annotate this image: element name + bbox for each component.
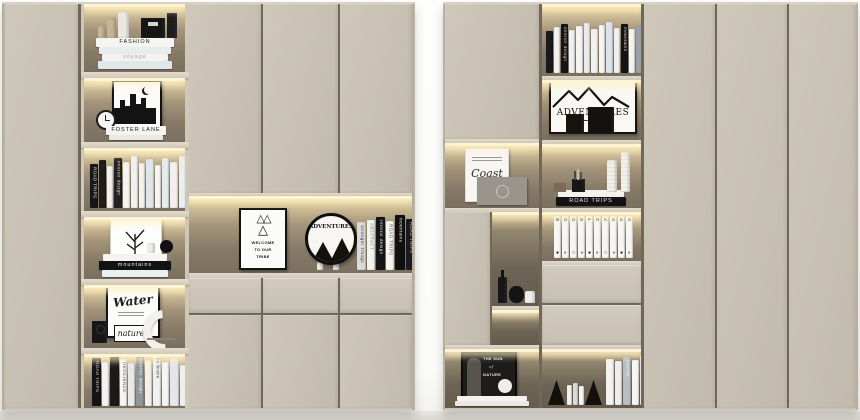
triangle-bookend <box>548 380 565 405</box>
poster-line3: NATURE <box>483 372 501 377</box>
speaker-cone <box>96 325 105 334</box>
door-panel-narrow <box>445 212 490 345</box>
book-spine <box>629 29 635 73</box>
empty-niche <box>492 310 539 345</box>
decor-box <box>141 18 165 38</box>
drawer-front <box>263 278 338 313</box>
adventures-round-sign: ADVENTURES <box>305 213 357 265</box>
stacked-book: ROAD TRIPS <box>556 197 626 206</box>
book-spine <box>579 386 584 405</box>
book-spine-text: E <box>620 218 623 223</box>
book-spine: P● <box>586 216 593 258</box>
book-spine-text: P <box>588 218 591 223</box>
bottle <box>498 277 507 303</box>
book-spine-text: O <box>564 218 568 223</box>
decor-box <box>588 107 614 134</box>
tribe-line1: WELCOME <box>241 240 285 245</box>
book-stack-foster-lane: FOSTER LANE <box>106 126 166 140</box>
book-spine <box>162 158 169 208</box>
stacked-book: FOSTER LANE <box>106 126 166 135</box>
book-spine <box>614 28 620 73</box>
wood-box <box>554 183 566 192</box>
book-spine: ABSTRACT <box>367 220 375 270</box>
moon-phases-niche: M●O◐O○N◑P●H◐A○S◑E●S◐ <box>542 212 641 261</box>
door-panel <box>644 4 715 408</box>
book-spine <box>128 363 135 406</box>
book-spine <box>615 361 622 405</box>
mountain-graphic <box>312 242 334 262</box>
book-spine-text: A <box>604 218 608 223</box>
art-caption-lines <box>118 312 144 317</box>
books-row: Stranger ThingsABSTRACTInterior designRO… <box>357 215 412 270</box>
moon-phase-icon: ○ <box>604 251 607 256</box>
book-spine-text: Stranger Things <box>359 225 364 263</box>
book-spine: O◐ <box>562 216 569 258</box>
book-spine <box>131 156 138 208</box>
drawer-front <box>542 265 641 303</box>
book-spine <box>110 354 119 406</box>
book-spine-text: interior design <box>116 161 121 195</box>
book-spine: A○ <box>602 216 609 258</box>
round-vase <box>509 286 524 303</box>
ring-logo <box>496 185 509 198</box>
book-spine-text: N <box>580 218 584 223</box>
book-spine <box>640 355 641 405</box>
book-spine <box>606 359 614 405</box>
book-stack-mountains: mountains <box>98 254 172 277</box>
moon-phase-icon: ● <box>588 251 591 256</box>
book-spine <box>99 160 106 208</box>
side-trim <box>412 2 415 410</box>
candle <box>147 243 155 253</box>
stacked-book <box>103 254 167 261</box>
mountain-graphic <box>330 238 354 262</box>
tribe-line3: TRIBE <box>241 254 285 259</box>
magazine-niche: Coast <box>445 143 539 208</box>
book-spine <box>155 165 161 208</box>
moon-phase-icon: ● <box>556 251 559 256</box>
stacked-book: voyage <box>102 54 168 61</box>
book-spine: S◐ <box>626 216 633 258</box>
book-spine <box>180 365 185 406</box>
stacked-book-title: voyage <box>102 54 168 61</box>
small-books <box>567 383 584 405</box>
horn-sculpture <box>143 304 179 340</box>
sculpture-base <box>147 338 175 340</box>
figure-silhouette <box>467 358 481 396</box>
book-spine <box>107 166 113 208</box>
book-spine <box>162 362 169 406</box>
book-spine: ROAD TRIPS <box>406 219 412 270</box>
book-spine: N◑ <box>578 216 585 258</box>
shelf-niche-fashion: FASHIONvoyage <box>84 4 185 72</box>
decor-box <box>167 13 177 38</box>
vase <box>107 18 116 38</box>
book-spine: Interior design <box>376 217 385 270</box>
shelf-niche-books: ROAD TRIPSinterior design <box>84 148 185 211</box>
book-spine-text: S <box>628 218 631 223</box>
door-panel <box>445 4 539 139</box>
book-spine-text: H <box>596 218 600 223</box>
book-spine: be brave <box>153 355 161 406</box>
book-spine <box>591 29 598 73</box>
book-spine-text: interior <box>625 360 630 377</box>
book-spine: interior design <box>136 356 144 406</box>
books-row: interior <box>606 355 641 405</box>
door-panel <box>5 4 78 408</box>
books-row: ROAD TRIPSinterior design <box>90 156 185 208</box>
magazine-text-lines <box>472 157 502 163</box>
book-spine <box>123 162 130 208</box>
book-spine-text: interior design <box>138 359 143 393</box>
white-jar <box>525 291 535 303</box>
decor-box <box>566 114 584 134</box>
pencil <box>574 171 576 180</box>
book-spine <box>170 358 179 406</box>
spiral-vase <box>607 160 617 192</box>
book-spine <box>569 30 575 73</box>
vase <box>98 26 105 38</box>
poster-line2: of <box>489 364 494 369</box>
side-trim <box>856 2 858 410</box>
stacked-book <box>109 135 163 140</box>
book-spine <box>145 360 152 406</box>
book-stack: ROAD TRIPS <box>555 190 627 206</box>
clock-hand <box>105 120 110 121</box>
sphere-vase <box>160 240 173 253</box>
stacked-book-title: ROAD TRIPS <box>556 197 626 206</box>
moon-phase-icon: ◑ <box>580 251 583 256</box>
wardrobe-room-render: FASHIONvoyage FOSTER LANE <box>0 0 860 420</box>
book-spine: ROAD TRIPS <box>92 358 101 406</box>
skyline-artwork <box>112 80 162 130</box>
black-poster: THE SUN of NATURE <box>461 349 517 398</box>
stacked-book <box>455 401 529 406</box>
stacked-book <box>99 47 171 54</box>
book-spine-text: Interior design <box>378 220 383 255</box>
book-spine: O○ <box>570 216 577 258</box>
skyline-graphic <box>114 82 156 124</box>
triangle-bookend <box>585 380 602 405</box>
book-spine <box>179 156 185 208</box>
door-panel <box>189 4 261 193</box>
round-sign-text: ADVENTURES <box>308 224 354 230</box>
display-niche: △△ △ WELCOME TO OUR TRIBE ADVENTURES Str… <box>189 196 412 273</box>
book-spine-text: S <box>612 218 615 223</box>
moon-phase-icon: ○ <box>572 251 575 256</box>
stacked-book <box>98 61 172 69</box>
book-spine-text: be brave <box>155 358 160 379</box>
pencil-cup <box>572 179 585 192</box>
drawer-front <box>189 278 261 313</box>
book-spine <box>146 159 154 208</box>
moon-phase-icon: ◐ <box>628 251 631 256</box>
book-spine: M● <box>554 216 561 258</box>
stacked-book-title: mountains <box>99 261 171 270</box>
door-panel <box>340 4 412 193</box>
book-spine <box>584 23 590 73</box>
door-panel <box>789 4 856 408</box>
wardrobe-unit-left: FASHIONvoyage FOSTER LANE <box>2 2 415 410</box>
stacked-book-title: FASHION <box>96 38 174 47</box>
moon-phase-icon: ● <box>620 251 623 256</box>
shelf-niche-skyline: FOSTER LANE <box>84 78 185 142</box>
moon-phase-icon: ◑ <box>612 251 615 256</box>
bookends-niche: interior <box>542 349 641 408</box>
book-spine: Stranger Things <box>357 222 366 270</box>
book-spine <box>599 25 605 73</box>
book-spine-text: interior design <box>562 27 567 61</box>
tribe-glyph2: △ <box>241 222 285 238</box>
book-spine: interior <box>623 357 631 405</box>
box-label <box>148 22 158 26</box>
book-spine-text: mountains <box>398 218 403 242</box>
book-stack-fashion: FASHIONvoyage <box>96 38 174 69</box>
book-spine: RESILIENCE <box>120 359 127 406</box>
book-spine <box>636 26 641 73</box>
spiral-vase <box>621 152 630 192</box>
book-spine-text: ROAD TRIPS <box>94 361 99 392</box>
tribe-line2: TO OUR <box>241 247 285 252</box>
book-spine <box>139 163 145 208</box>
stacked-book-title: FOSTER LANE <box>106 126 166 135</box>
book-spine-text: ABSTRACT <box>369 223 374 250</box>
book-spine-text: M <box>555 218 559 223</box>
book-spine-text: ROAD TRIPS <box>92 167 97 198</box>
book-spine-text: O <box>572 218 576 223</box>
book-spine: E● <box>618 216 625 258</box>
round-badge <box>498 379 512 393</box>
pencil <box>580 172 582 180</box>
door-panel <box>717 4 787 408</box>
book-spine <box>554 27 560 73</box>
shelf-niche-water: Water nature <box>84 285 185 348</box>
bottle-niche <box>492 212 539 306</box>
book-spine <box>546 31 553 73</box>
floor <box>0 411 860 420</box>
book-spine <box>606 22 613 73</box>
shelf-niche-books-bottom: ROAD TRIPSRESILIENCEinterior designbe br… <box>84 354 185 408</box>
door-panel <box>189 315 261 408</box>
book-spine: interior design <box>561 24 568 73</box>
book-spine <box>576 26 583 73</box>
stacked-book: mountains <box>99 261 171 270</box>
bottle-neck <box>501 270 504 278</box>
book-spine <box>632 360 639 405</box>
open-shelf-column: FASHIONvoyage FOSTER LANE <box>81 4 189 408</box>
poster-line1: THE SUN <box>483 356 503 361</box>
book-spine: ROAD TRIPS <box>386 221 394 270</box>
book-spine <box>573 383 578 405</box>
book-stack <box>453 396 531 406</box>
mountain-ridge-graphic <box>551 85 631 109</box>
drawer-front <box>542 305 641 345</box>
book-spine-text: mountains <box>622 27 627 51</box>
wardrobe-unit-right: Coast THE SUN of NATURE <box>443 2 858 410</box>
book-spine: mountains <box>621 24 628 73</box>
speaker <box>92 321 107 343</box>
moon-phase-icon: ◐ <box>564 251 567 256</box>
pencil <box>577 169 579 180</box>
door-panel <box>263 4 338 193</box>
shelf-niche-tree: mountains <box>84 217 185 279</box>
book-spine <box>170 162 178 208</box>
book-spine: ROAD TRIPS <box>90 164 98 208</box>
book-spine <box>102 362 109 406</box>
gray-box <box>477 177 527 205</box>
top-books-niche: interior designmountains <box>542 4 641 76</box>
books-row: ROAD TRIPSRESILIENCEinterior designbe br… <box>92 354 185 406</box>
book-spine: H◐ <box>594 216 601 258</box>
book-spine <box>567 385 572 405</box>
vases-niche: ROAD TRIPS <box>542 144 641 208</box>
books-row: interior designmountains <box>546 22 641 73</box>
vase <box>118 12 129 38</box>
book-spine: S◑ <box>610 216 617 258</box>
drawer-front <box>340 278 412 313</box>
stacked-book <box>102 270 168 277</box>
door-panel <box>263 315 338 408</box>
book-spine: mountains <box>395 215 405 270</box>
stacked-book: FASHION <box>96 38 174 47</box>
tribe-poster: △△ △ WELCOME TO OUR TRIBE <box>239 208 287 270</box>
door-panel <box>340 315 412 408</box>
book-spine-text: ROAD TRIPS <box>408 222 412 253</box>
book-spine: interior design <box>114 158 122 208</box>
book-spine-text: RESILIENCE <box>121 362 126 393</box>
moon-phases-books: M●O◐O○N◑P●H◐A○S◑E●S◐ <box>554 216 633 258</box>
poster-niche: THE SUN of NATURE <box>445 349 539 408</box>
adventure-niche: ADVENTURES <box>542 80 641 140</box>
moon-phase-icon: ◐ <box>596 251 599 256</box>
book-spine-text: ROAD TRIPS <box>388 224 393 255</box>
